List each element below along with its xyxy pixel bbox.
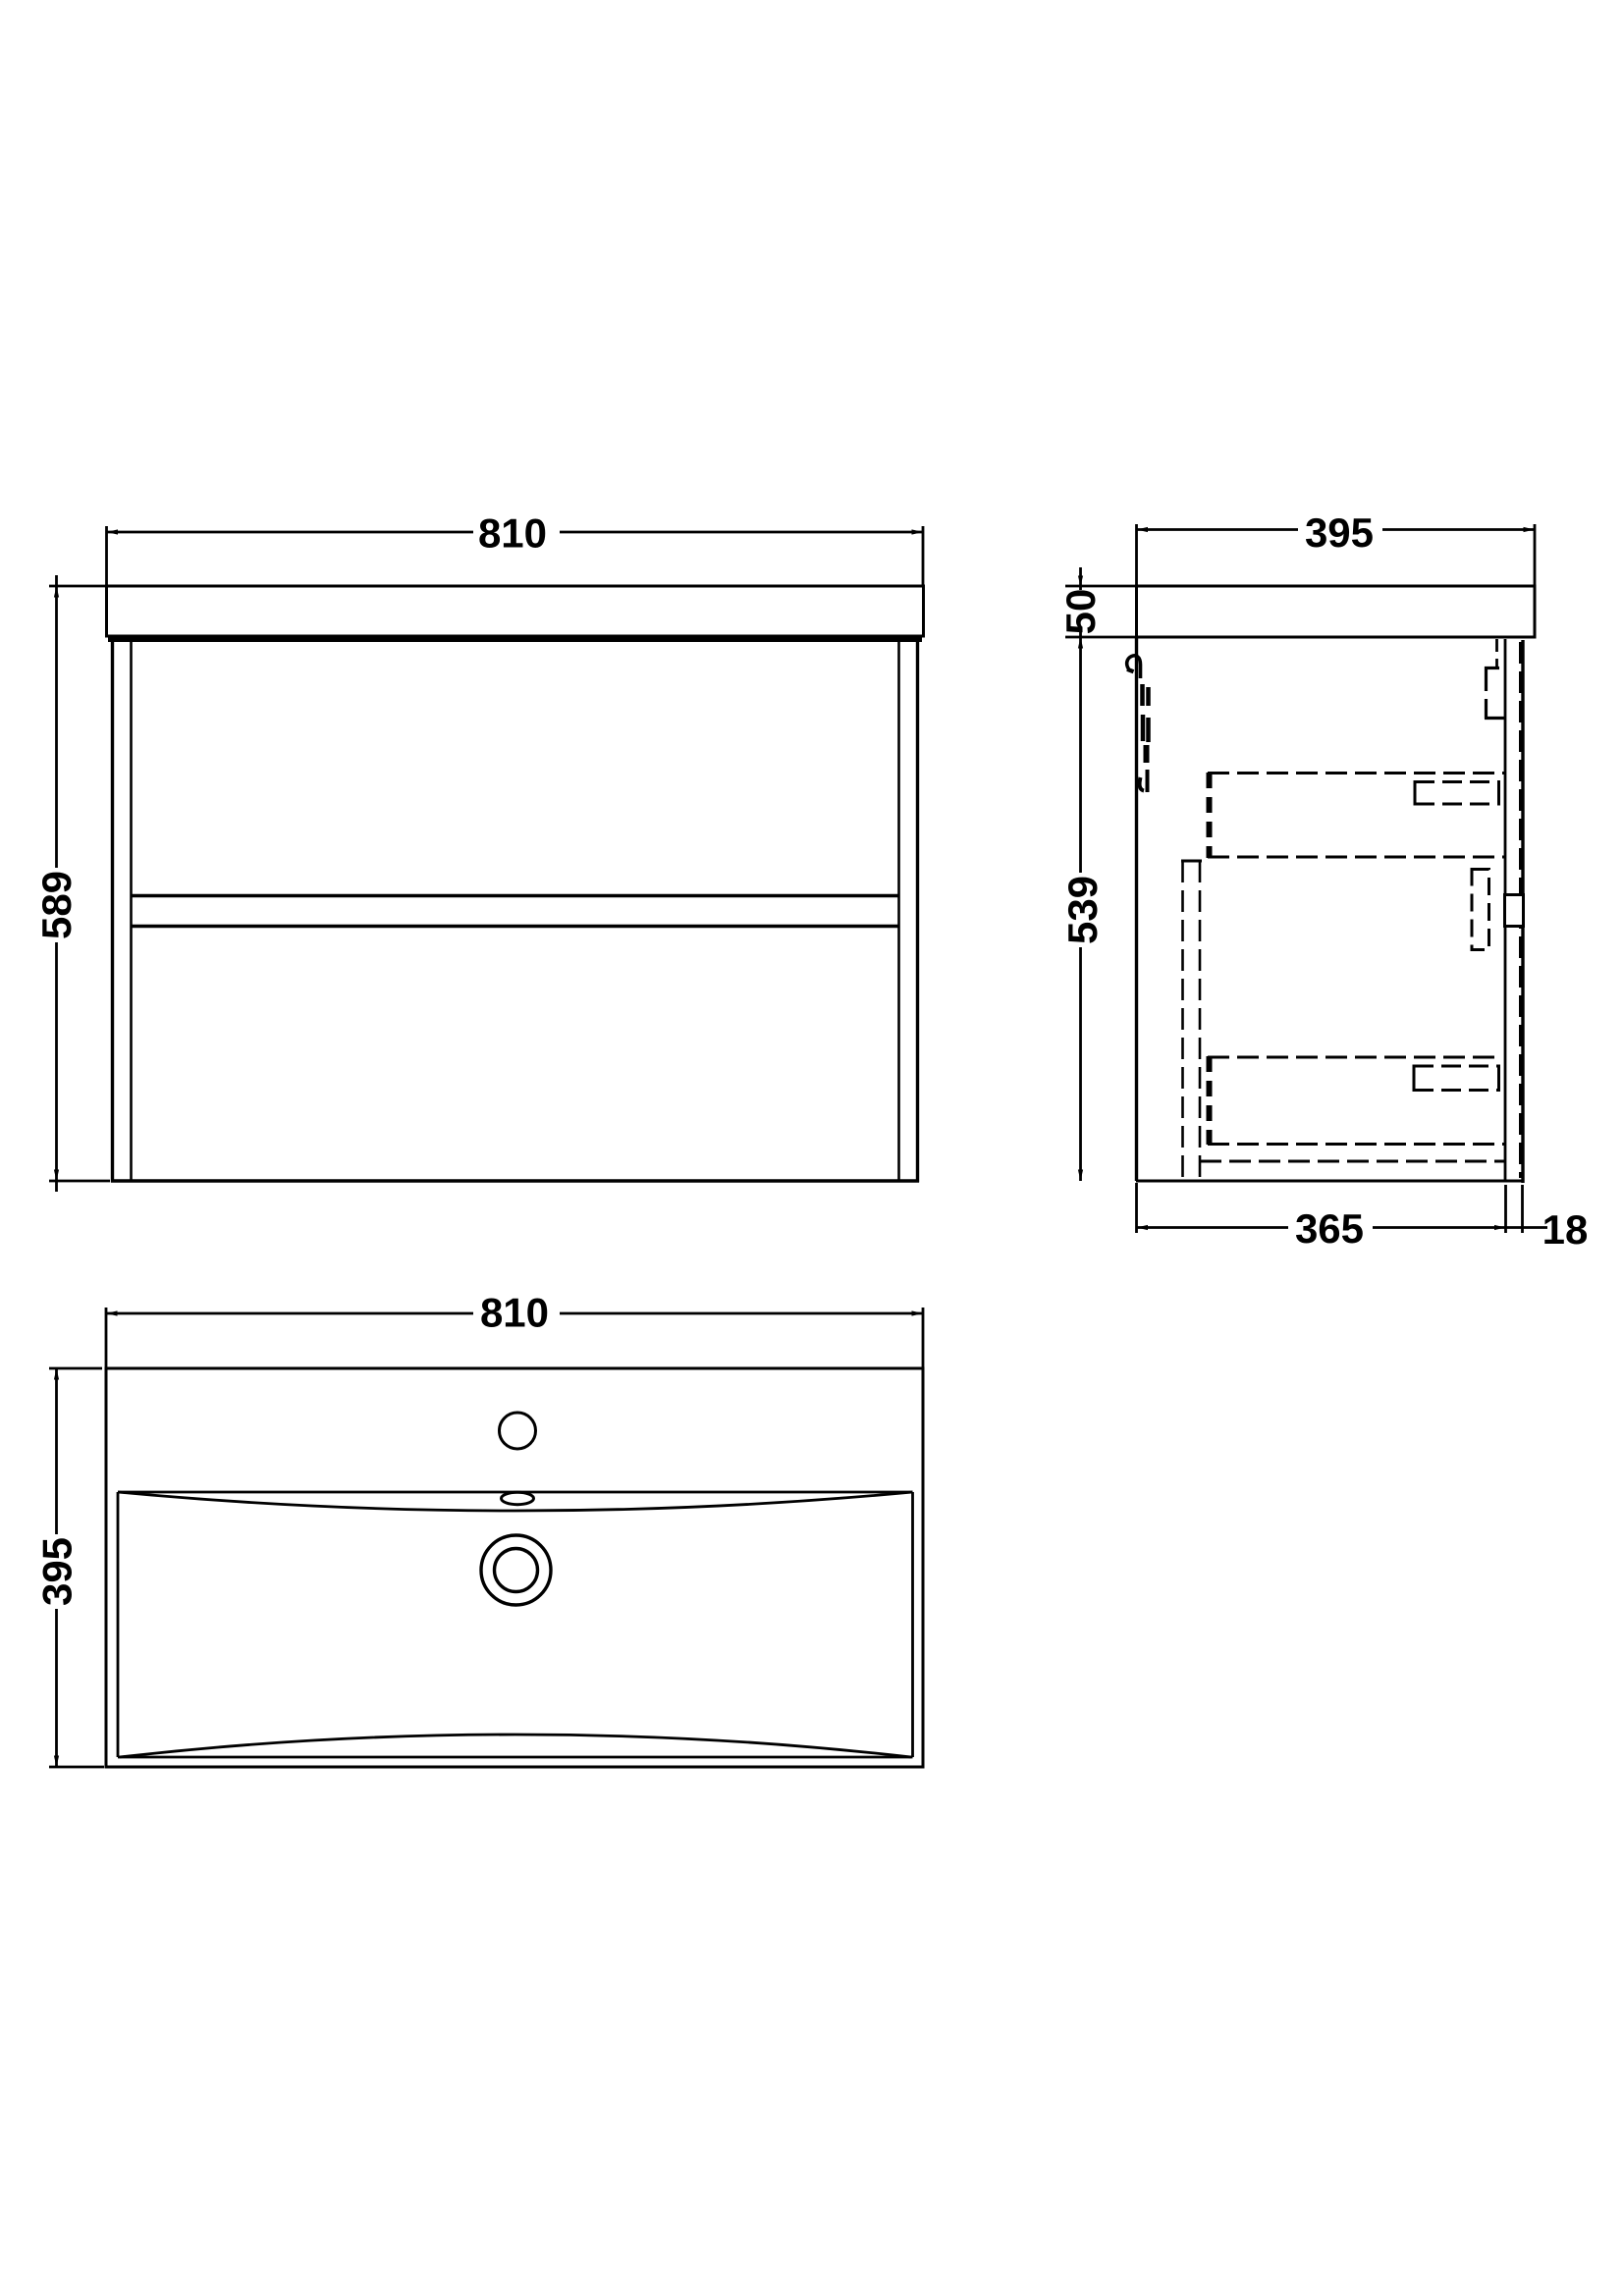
svg-text:589: 589 bbox=[33, 871, 80, 939]
svg-text:365: 365 bbox=[1295, 1205, 1364, 1252]
svg-text:395: 395 bbox=[1305, 509, 1374, 556]
svg-text:810: 810 bbox=[480, 1290, 549, 1336]
svg-text:395: 395 bbox=[34, 1537, 81, 1606]
svg-text:539: 539 bbox=[1059, 876, 1106, 944]
svg-text:810: 810 bbox=[478, 510, 547, 557]
svg-text:18: 18 bbox=[1542, 1206, 1589, 1253]
svg-text:50: 50 bbox=[1057, 589, 1104, 635]
